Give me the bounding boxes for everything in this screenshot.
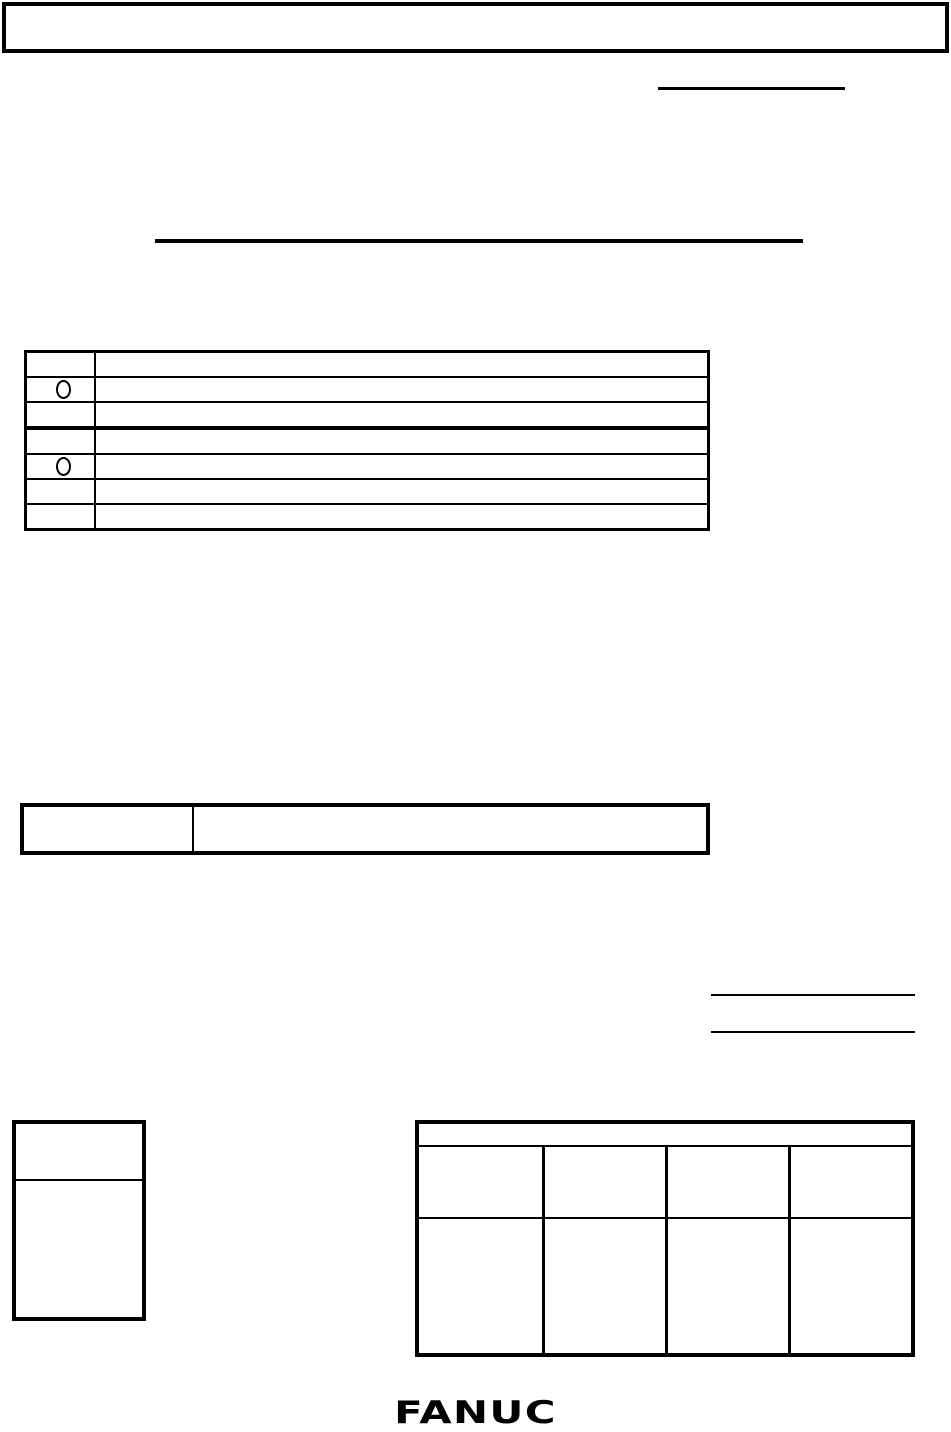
label-value-table xyxy=(20,803,710,855)
side-box-top-cell xyxy=(16,1124,142,1181)
revision-mark-cell xyxy=(27,378,96,401)
revision-mark-cell xyxy=(27,353,96,376)
revision-table-row xyxy=(27,505,707,528)
approval-table-cell xyxy=(788,1147,911,1219)
revision-text-cell xyxy=(96,430,707,453)
approval-table-grid xyxy=(419,1147,911,1353)
approval-table-cell xyxy=(542,1219,665,1353)
revision-table-row xyxy=(27,428,707,455)
revision-table-row xyxy=(27,480,707,505)
value-cell xyxy=(194,807,706,851)
approval-table-cell xyxy=(788,1219,911,1353)
header-box xyxy=(2,2,949,53)
circle-mark-icon xyxy=(56,380,71,399)
fanuc-logo: FANUC xyxy=(0,1398,951,1429)
revision-mark-cell xyxy=(27,403,96,426)
top-right-underline xyxy=(658,87,845,90)
approval-table xyxy=(415,1120,915,1357)
revision-text-cell xyxy=(96,353,707,376)
side-box-bottom-cell xyxy=(16,1181,142,1317)
circle-mark-icon xyxy=(56,457,71,476)
approval-table-cell xyxy=(542,1147,665,1219)
approval-table-header xyxy=(419,1124,911,1147)
revision-table-row xyxy=(27,353,707,378)
approval-table-cell xyxy=(665,1147,788,1219)
label-cell xyxy=(24,807,194,851)
side-box xyxy=(12,1120,146,1321)
approval-table-cell xyxy=(665,1219,788,1353)
approval-table-cell xyxy=(419,1219,542,1353)
revision-mark-cell xyxy=(27,430,96,453)
revision-mark-cell xyxy=(27,505,96,528)
revision-text-cell xyxy=(96,505,707,528)
revision-table xyxy=(24,350,710,531)
revision-table-row xyxy=(27,403,707,428)
signature-line-1 xyxy=(711,994,915,996)
revision-text-cell xyxy=(96,480,707,503)
revision-mark-cell xyxy=(27,480,96,503)
revision-text-cell xyxy=(96,378,707,401)
revision-text-cell xyxy=(96,403,707,426)
revision-mark-cell xyxy=(27,455,96,478)
approval-table-cell xyxy=(419,1147,542,1219)
signature-line-2 xyxy=(711,1031,915,1033)
revision-table-row xyxy=(27,378,707,403)
title-underline xyxy=(155,239,803,243)
revision-text-cell xyxy=(96,455,707,478)
document-page: FANUC xyxy=(0,0,951,1432)
revision-table-row xyxy=(27,455,707,480)
